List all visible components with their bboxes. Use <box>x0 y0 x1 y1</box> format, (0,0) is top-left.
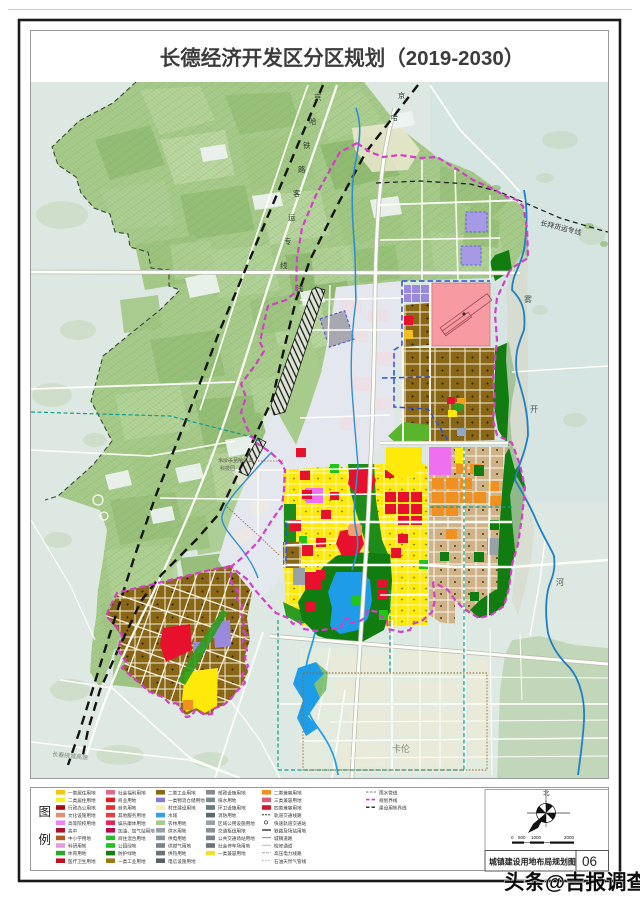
svg-text:哈: 哈 <box>309 116 317 126</box>
svg-text:卡伦: 卡伦 <box>392 743 410 754</box>
svg-text:二类居住用地: 二类居住用地 <box>68 797 96 804</box>
svg-text:米沙子至哈尔滨: 米沙子至哈尔滨 <box>218 457 253 464</box>
svg-text:科技园: 科技园 <box>220 465 235 472</box>
svg-text:医疗卫生用地: 医疗卫生用地 <box>68 858 96 865</box>
svg-text:一类兼容用地: 一类兼容用地 <box>218 850 246 857</box>
svg-text:哈: 哈 <box>391 113 398 122</box>
svg-text:城镇道路: 城镇道路 <box>274 835 293 842</box>
svg-text:北: 北 <box>543 789 550 797</box>
svg-text:石油天然气管线: 石油天然气管线 <box>274 858 307 865</box>
svg-text:城镇建设用地布局规划图: 城镇建设用地布局规划图 <box>489 857 576 867</box>
svg-text:供水用地: 供水用地 <box>168 827 187 834</box>
svg-text:环卫设施用地: 环卫设施用地 <box>218 805 246 812</box>
svg-text:客: 客 <box>293 188 301 198</box>
svg-text:快速轨道交通站: 快速轨道交通站 <box>274 820 307 827</box>
svg-text:头条@吉报调查: 头条@吉报调查 <box>504 870 640 894</box>
svg-text:四类兼容用地: 四类兼容用地 <box>274 805 302 812</box>
svg-text:铁路及场站用地: 铁路及场站用地 <box>274 827 307 834</box>
svg-text:京: 京 <box>398 91 405 100</box>
svg-text:社会福利用地: 社会福利用地 <box>118 789 146 796</box>
svg-text:雾: 雾 <box>524 295 532 304</box>
svg-text:商务用地: 商务用地 <box>118 805 137 812</box>
svg-text:公园绿地: 公园绿地 <box>118 843 137 850</box>
svg-text:建设用地界线: 建设用地界线 <box>379 805 407 812</box>
svg-text:其他服务用地: 其他服务用地 <box>118 812 146 819</box>
svg-text:社会停车场用地: 社会停车场用地 <box>218 843 251 850</box>
svg-text:高中: 高中 <box>68 827 78 834</box>
svg-text:运: 运 <box>288 213 296 222</box>
svg-text:1000: 1000 <box>531 835 542 840</box>
svg-text:浅: 浅 <box>296 283 304 293</box>
svg-text:消防用地: 消防用地 <box>218 812 237 819</box>
svg-text:体育用地: 体育用地 <box>68 850 87 857</box>
svg-text:公共交通场站用地: 公共交通场站用地 <box>218 835 255 842</box>
svg-text:农林用地: 农林用地 <box>168 820 187 827</box>
svg-text:例: 例 <box>39 833 52 847</box>
svg-text:商业用地: 商业用地 <box>118 797 137 804</box>
svg-text:一类物流仓储用地: 一类物流仓储用地 <box>168 797 205 804</box>
svg-text:路: 路 <box>298 164 306 174</box>
svg-text:电信设施用地: 电信设施用地 <box>168 858 196 865</box>
svg-text:排水用地: 排水用地 <box>218 797 237 804</box>
svg-text:商住混合用地: 商住混合用地 <box>118 835 146 842</box>
svg-text:雨水管线: 雨水管线 <box>379 789 398 796</box>
svg-text:规划界线: 规划界线 <box>379 797 398 804</box>
svg-text:二类工业用地: 二类工业用地 <box>168 789 196 796</box>
svg-text:京: 京 <box>314 92 322 102</box>
svg-text:文化设施用地: 文化设施用地 <box>68 812 96 819</box>
svg-text:供电用地: 供电用地 <box>168 835 187 842</box>
svg-text:防护绿地: 防护绿地 <box>118 850 137 857</box>
svg-text:区域公用设施用地: 区域公用设施用地 <box>218 820 255 827</box>
svg-text:二类兼容用地: 二类兼容用地 <box>274 789 302 796</box>
svg-text:交通枢纽用地: 交通枢纽用地 <box>218 827 246 834</box>
svg-text:邮政设施用地: 邮政设施用地 <box>218 789 246 796</box>
svg-text:供燃气用地: 供燃气用地 <box>168 843 191 850</box>
svg-text:科研用地: 科研用地 <box>68 843 87 850</box>
svg-text:供热用地: 供热用地 <box>168 850 187 857</box>
svg-text:一类工业用地: 一类工业用地 <box>118 858 146 865</box>
svg-text:轨道交通线路: 轨道交通线路 <box>274 812 302 819</box>
svg-text:专: 专 <box>284 236 292 246</box>
svg-text:铁: 铁 <box>303 140 311 150</box>
svg-text:村庄建设用地: 村庄建设用地 <box>168 805 196 812</box>
svg-text:水域: 水域 <box>168 812 178 818</box>
svg-text:开: 开 <box>530 405 538 414</box>
svg-text:06: 06 <box>582 854 597 869</box>
svg-text:高压电力线路: 高压电力线路 <box>274 850 302 857</box>
svg-text:河: 河 <box>556 577 564 587</box>
svg-text:中小学用地: 中小学用地 <box>68 835 91 842</box>
svg-text:图: 图 <box>39 805 52 819</box>
svg-text:娱乐康体用地: 娱乐康体用地 <box>118 820 146 827</box>
svg-text:长德经济开发区分区规划（2019-2030）: 长德经济开发区分区规划（2019-2030） <box>160 46 525 70</box>
svg-text:检修通道: 检修通道 <box>274 843 293 850</box>
svg-text:高等院校用地: 高等院校用地 <box>68 820 96 827</box>
svg-text:一类居住用地: 一类居住用地 <box>68 789 96 796</box>
svg-text:加油、加气站用地: 加油、加气站用地 <box>118 827 155 834</box>
svg-text:2000: 2000 <box>564 835 575 840</box>
svg-text:行政办公用地: 行政办公用地 <box>68 805 96 812</box>
svg-text:500: 500 <box>518 835 526 840</box>
svg-text:线: 线 <box>280 260 288 270</box>
svg-text:三类兼容用地: 三类兼容用地 <box>274 797 302 804</box>
